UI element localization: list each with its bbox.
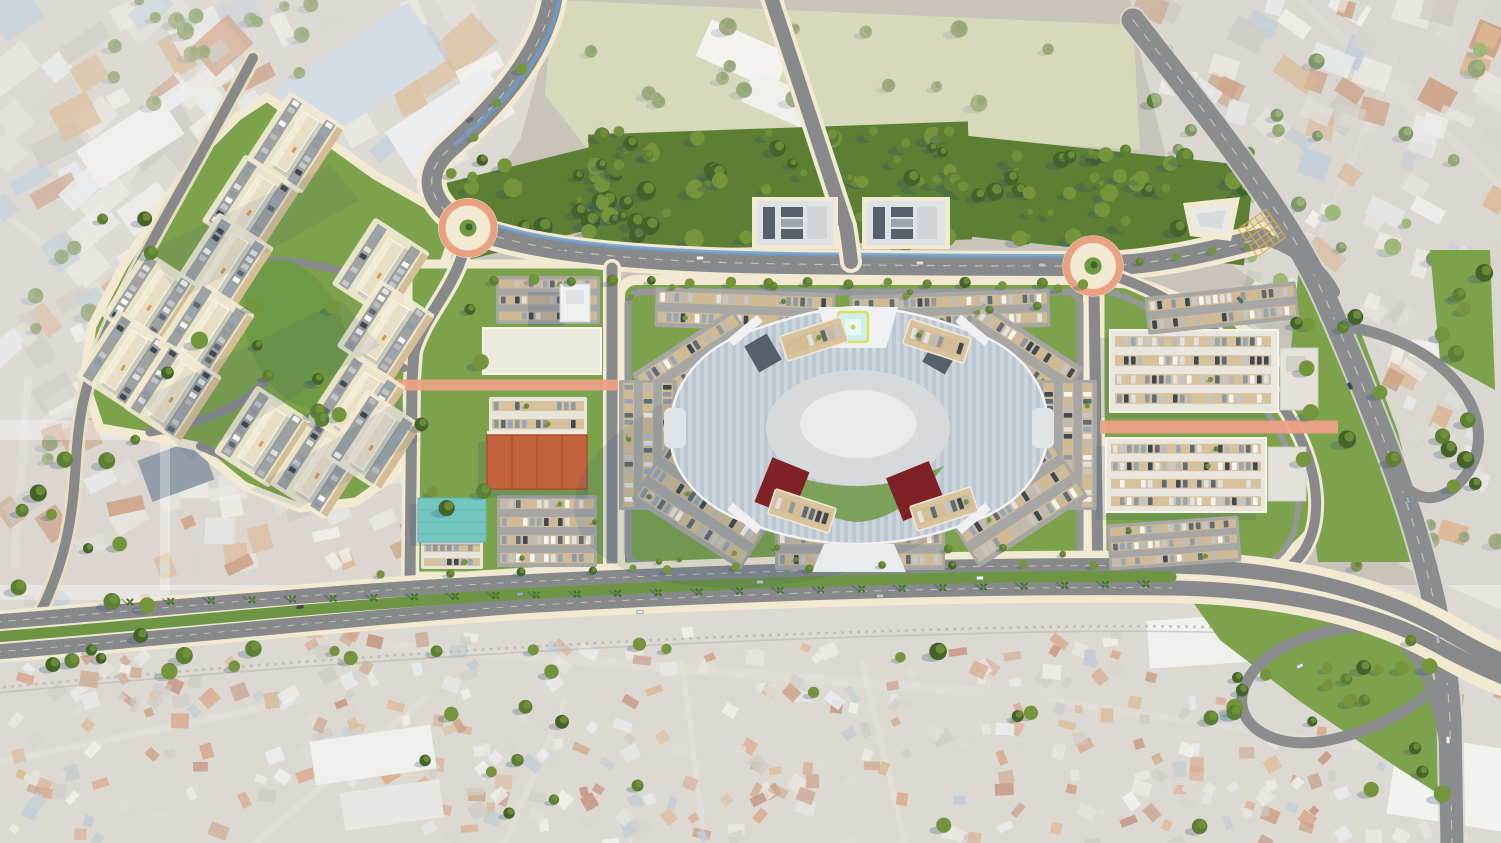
tree-highlight bbox=[905, 294, 909, 298]
parked-car bbox=[1173, 356, 1178, 364]
tree-highlight bbox=[492, 277, 497, 282]
parked-car bbox=[565, 500, 570, 508]
parked-car bbox=[1044, 392, 1053, 397]
tree-highlight bbox=[316, 374, 322, 380]
parked-car bbox=[515, 280, 520, 287]
tree-highlight bbox=[617, 127, 623, 133]
parked-car bbox=[1141, 497, 1146, 505]
tree-highlight bbox=[1121, 216, 1131, 226]
parked-car bbox=[695, 314, 700, 323]
tree-highlight bbox=[1088, 149, 1094, 155]
tree-highlight bbox=[1027, 187, 1034, 194]
palm-crown bbox=[169, 600, 172, 603]
mall-east-glass-roof bbox=[1032, 408, 1054, 448]
parked-car bbox=[1261, 290, 1266, 299]
palm-crown bbox=[941, 586, 944, 589]
tree-highlight bbox=[1057, 285, 1062, 290]
vehicle bbox=[1446, 736, 1450, 743]
palm-crown bbox=[616, 592, 619, 595]
parked-car bbox=[515, 402, 520, 410]
parked-car bbox=[1134, 445, 1139, 453]
parked-car bbox=[571, 402, 576, 410]
parked-car bbox=[1239, 497, 1244, 505]
parked-car bbox=[1155, 462, 1160, 470]
parked-car bbox=[1197, 538, 1202, 545]
parked-car bbox=[716, 295, 721, 304]
parked-car bbox=[1064, 420, 1073, 425]
tree-highlight bbox=[1307, 319, 1314, 326]
tree-highlight bbox=[1103, 148, 1111, 156]
parked-car bbox=[1250, 356, 1255, 364]
tree-highlight bbox=[935, 644, 945, 654]
retail-strip-building bbox=[483, 328, 601, 374]
parked-car bbox=[579, 554, 584, 562]
parked-car bbox=[1170, 555, 1175, 562]
parked-car bbox=[1163, 555, 1168, 562]
tree-highlight bbox=[523, 701, 531, 709]
parked-car bbox=[897, 299, 902, 308]
parked-car bbox=[1001, 295, 1006, 304]
tree-highlight bbox=[806, 278, 811, 283]
tree-highlight bbox=[1446, 442, 1455, 451]
roundabout bbox=[1062, 235, 1123, 296]
tree-highlight bbox=[464, 560, 467, 563]
parked-car bbox=[1275, 288, 1280, 297]
parked-car bbox=[786, 297, 791, 306]
parked-car bbox=[1210, 521, 1215, 528]
office-court bbox=[781, 219, 803, 227]
parked-car bbox=[1239, 462, 1244, 470]
tree-highlight bbox=[647, 218, 657, 228]
tree-highlight bbox=[1099, 180, 1105, 186]
parked-car bbox=[1182, 523, 1187, 530]
parked-car bbox=[515, 296, 520, 303]
palm-crown bbox=[210, 599, 213, 602]
tree-highlight bbox=[735, 563, 740, 568]
parked-car bbox=[1162, 445, 1167, 453]
parked-car bbox=[1197, 480, 1202, 488]
tree-highlight bbox=[1440, 430, 1448, 438]
parked-car bbox=[1036, 294, 1041, 303]
tree-highlight bbox=[1124, 145, 1130, 151]
parked-car bbox=[1113, 445, 1118, 453]
tree-highlight bbox=[252, 299, 260, 307]
tree-highlight bbox=[600, 160, 606, 166]
tree-highlight bbox=[812, 688, 818, 694]
tree-highlight bbox=[744, 232, 751, 239]
tree-highlight bbox=[1106, 186, 1116, 196]
parked-car bbox=[1227, 293, 1232, 302]
parked-car bbox=[579, 536, 584, 544]
parked-car bbox=[1222, 356, 1227, 364]
tree-highlight bbox=[621, 212, 627, 218]
parked-car bbox=[1131, 356, 1136, 364]
parked-car bbox=[1211, 480, 1216, 488]
parked-car bbox=[1134, 462, 1139, 470]
tree-highlight bbox=[632, 565, 636, 569]
tree-highlight bbox=[665, 645, 671, 651]
parked-car bbox=[522, 312, 527, 319]
tree-highlight bbox=[1473, 478, 1480, 485]
parked-car bbox=[906, 555, 911, 564]
office-wing-roof bbox=[873, 207, 885, 239]
parked-car bbox=[1185, 298, 1190, 307]
palm-crown bbox=[697, 590, 700, 593]
stall-row bbox=[492, 401, 584, 411]
tree-highlight bbox=[197, 333, 207, 343]
tree-highlight bbox=[671, 285, 675, 289]
parked-car bbox=[1239, 445, 1244, 453]
parked-car bbox=[536, 420, 541, 428]
tree-highlight bbox=[808, 565, 813, 570]
tree-highlight bbox=[767, 279, 772, 284]
parked-car bbox=[1222, 394, 1227, 402]
parked-car bbox=[1282, 287, 1287, 296]
parked-car bbox=[1159, 375, 1164, 383]
tree-highlight bbox=[1068, 151, 1075, 158]
office-wing-roof bbox=[763, 207, 775, 239]
parked-car bbox=[1183, 497, 1188, 505]
tree-highlight bbox=[577, 197, 583, 203]
tree-highlight bbox=[540, 219, 551, 230]
tree-highlight bbox=[643, 183, 654, 194]
tree-highlight bbox=[1361, 661, 1369, 669]
parked-car bbox=[1083, 434, 1092, 439]
tree-highlight bbox=[109, 594, 118, 603]
palm-crown bbox=[982, 585, 985, 588]
tree-highlight bbox=[791, 159, 797, 165]
parked-car bbox=[1083, 420, 1092, 425]
tree-highlight bbox=[766, 130, 773, 137]
tree-highlight bbox=[481, 485, 489, 493]
tree-highlight bbox=[471, 173, 477, 179]
parked-car bbox=[1064, 392, 1073, 397]
parked-car bbox=[674, 293, 679, 302]
tree-highlight bbox=[20, 505, 27, 512]
tree-highlight bbox=[658, 559, 661, 562]
parked-car bbox=[1083, 462, 1092, 467]
parked-car bbox=[1138, 337, 1143, 345]
parked-car bbox=[1229, 312, 1234, 321]
island-tree bbox=[466, 224, 473, 231]
parked-car bbox=[447, 559, 452, 565]
parked-car bbox=[681, 293, 686, 302]
tree-highlight bbox=[495, 99, 500, 104]
tree-highlight bbox=[1462, 303, 1469, 310]
parked-car bbox=[932, 298, 937, 307]
tree-highlight bbox=[947, 545, 952, 550]
parked-car bbox=[523, 536, 528, 544]
parked-car bbox=[1197, 497, 1202, 505]
parked-car bbox=[1141, 445, 1146, 453]
tree-highlight bbox=[1016, 711, 1023, 718]
parked-car bbox=[1225, 497, 1230, 505]
parked-car bbox=[1183, 462, 1188, 470]
tree-highlight bbox=[1207, 464, 1210, 467]
palm-crown bbox=[860, 587, 863, 590]
parked-car bbox=[551, 500, 556, 508]
tree-highlight bbox=[1071, 230, 1080, 239]
tree-highlight bbox=[1246, 244, 1250, 248]
tree-highlight bbox=[1465, 414, 1474, 423]
parked-car bbox=[1124, 337, 1129, 345]
parked-car bbox=[953, 297, 958, 306]
tower-roof-unit bbox=[566, 290, 584, 304]
tree-highlight bbox=[869, 126, 878, 135]
tree-highlight bbox=[1344, 432, 1354, 442]
parked-car bbox=[1155, 541, 1160, 548]
parked-car bbox=[1284, 306, 1289, 315]
parked-car bbox=[440, 559, 445, 565]
parked-car bbox=[1171, 299, 1176, 308]
parked-car bbox=[537, 500, 542, 508]
parked-car bbox=[1117, 394, 1122, 402]
parked-car bbox=[1257, 394, 1262, 402]
tree-highlight bbox=[182, 648, 191, 657]
tree-highlight bbox=[449, 570, 454, 575]
parked-car bbox=[1145, 337, 1150, 345]
parked-car bbox=[515, 420, 520, 428]
parked-car bbox=[918, 298, 923, 307]
parked-car bbox=[702, 314, 707, 323]
parked-car bbox=[1152, 375, 1157, 383]
tree-highlight bbox=[909, 290, 912, 293]
parked-car bbox=[1121, 558, 1126, 565]
parked-car bbox=[1157, 301, 1162, 310]
tree-highlight bbox=[1232, 706, 1241, 715]
parked-car bbox=[1148, 541, 1153, 548]
office-wing-roof bbox=[807, 207, 827, 239]
parked-car bbox=[1113, 544, 1118, 551]
office-wing-roof bbox=[891, 207, 913, 217]
tree-highlight bbox=[941, 819, 949, 827]
tree-highlight bbox=[117, 538, 125, 546]
parked-car bbox=[1114, 559, 1119, 566]
parked-car bbox=[551, 536, 556, 544]
parked-car bbox=[1029, 294, 1034, 303]
tree-highlight bbox=[167, 664, 176, 673]
parked-car bbox=[544, 536, 549, 544]
parked-car bbox=[1253, 462, 1258, 470]
tree-highlight bbox=[473, 134, 478, 139]
tree-highlight bbox=[893, 156, 901, 164]
tree-highlight bbox=[1301, 453, 1309, 461]
tree-highlight bbox=[1140, 172, 1148, 180]
parked-car bbox=[1173, 375, 1178, 383]
tree-highlight bbox=[765, 185, 771, 191]
parked-car bbox=[644, 385, 653, 390]
tree-highlight bbox=[988, 306, 993, 311]
vehicle bbox=[1117, 586, 1124, 590]
parked-car bbox=[550, 280, 555, 287]
parked-car bbox=[1256, 309, 1261, 318]
parked-car bbox=[564, 402, 569, 410]
parked-car bbox=[821, 298, 826, 307]
tree-highlight bbox=[691, 231, 702, 242]
parked-car bbox=[1152, 394, 1157, 402]
parked-car bbox=[1117, 375, 1122, 383]
parked-car bbox=[1169, 540, 1174, 547]
tree-highlight bbox=[951, 562, 956, 567]
tree-highlight bbox=[379, 571, 384, 576]
parked-car bbox=[468, 559, 473, 565]
parked-car bbox=[1208, 394, 1213, 402]
parked-car bbox=[558, 536, 563, 544]
tree-highlight bbox=[1161, 184, 1170, 193]
tree-highlight bbox=[502, 159, 510, 167]
tree-highlight bbox=[662, 208, 671, 217]
parked-car bbox=[1194, 356, 1199, 364]
tree-highlight bbox=[637, 639, 644, 646]
parked-car bbox=[1277, 307, 1282, 316]
parked-car bbox=[537, 554, 542, 562]
parked-car bbox=[1134, 542, 1139, 549]
tree-highlight bbox=[479, 355, 488, 364]
parked-car bbox=[572, 554, 577, 562]
tree-highlight bbox=[1175, 254, 1179, 258]
parked-car bbox=[1253, 445, 1258, 453]
parked-car bbox=[1180, 337, 1185, 345]
parked-car bbox=[1124, 356, 1129, 364]
parked-car bbox=[522, 296, 527, 303]
parked-car bbox=[1220, 294, 1225, 303]
tree-highlight bbox=[1001, 282, 1006, 287]
tree-highlight bbox=[776, 545, 779, 548]
tree-highlight bbox=[134, 436, 140, 442]
tree-highlight bbox=[490, 767, 496, 773]
parked-car bbox=[1131, 394, 1136, 402]
tree-highlight bbox=[1209, 712, 1217, 720]
palm-crown bbox=[413, 595, 416, 598]
tree-highlight bbox=[560, 716, 568, 724]
mall-courtyard-paving bbox=[800, 390, 916, 458]
parked-car bbox=[730, 295, 735, 304]
parked-car bbox=[1229, 375, 1234, 383]
parked-car bbox=[1196, 522, 1201, 529]
tree-highlight bbox=[734, 551, 737, 554]
palm-crown bbox=[738, 590, 741, 593]
parked-car bbox=[1183, 539, 1188, 546]
parked-car bbox=[1180, 375, 1185, 383]
parked-car bbox=[509, 500, 514, 508]
parked-car bbox=[1147, 526, 1152, 533]
parked-car bbox=[1113, 462, 1118, 470]
tree-highlight bbox=[1118, 170, 1126, 178]
vehicle bbox=[917, 261, 924, 265]
parked-car bbox=[1083, 455, 1092, 460]
parked-car bbox=[1250, 375, 1255, 383]
tree-highlight bbox=[90, 645, 96, 651]
parked-car bbox=[1064, 434, 1073, 439]
vehicle bbox=[296, 605, 303, 609]
office-plot-2 bbox=[862, 197, 950, 249]
tree-highlight bbox=[1068, 188, 1075, 195]
tree-highlight bbox=[142, 213, 150, 221]
parked-car bbox=[1189, 523, 1194, 530]
tree-highlight bbox=[718, 174, 727, 183]
parked-car bbox=[660, 293, 665, 302]
tree-highlight bbox=[1348, 695, 1356, 703]
parked-car bbox=[502, 518, 507, 526]
tree-highlight bbox=[944, 126, 954, 136]
roundabout bbox=[438, 198, 498, 258]
vehicle bbox=[756, 580, 763, 584]
tree-highlight bbox=[251, 642, 260, 651]
tree-highlight bbox=[145, 599, 154, 608]
parked-car bbox=[1176, 497, 1181, 505]
office-plot-1 bbox=[752, 197, 838, 249]
parked-car bbox=[934, 555, 939, 564]
stall-row bbox=[1111, 444, 1261, 454]
tree-highlight bbox=[507, 808, 513, 814]
parked-car bbox=[911, 299, 916, 308]
parked-car bbox=[1215, 337, 1220, 345]
palm-crown bbox=[1144, 582, 1147, 585]
tree-highlight bbox=[1369, 783, 1377, 791]
parked-car bbox=[1229, 394, 1234, 402]
tree-highlight bbox=[423, 756, 429, 762]
parked-car bbox=[1190, 538, 1195, 545]
tree-highlight bbox=[1087, 405, 1090, 408]
parked-car bbox=[1180, 317, 1185, 326]
parked-car bbox=[1131, 375, 1136, 383]
tree-highlight bbox=[520, 568, 525, 573]
parked-car bbox=[1264, 356, 1269, 364]
parked-car bbox=[1083, 427, 1092, 432]
parked-car bbox=[1166, 375, 1171, 383]
tree-highlight bbox=[729, 278, 735, 284]
parked-car bbox=[967, 297, 972, 306]
palm-crown bbox=[372, 596, 375, 599]
parked-car bbox=[1203, 522, 1208, 529]
tree-highlight bbox=[444, 501, 453, 510]
tree-highlight bbox=[547, 422, 550, 425]
vehicle bbox=[1436, 636, 1441, 643]
parked-car bbox=[913, 555, 918, 564]
tree-highlight bbox=[1440, 328, 1448, 336]
tree-highlight bbox=[1197, 820, 1206, 829]
tree-highlight bbox=[50, 510, 56, 516]
parked-car bbox=[1145, 394, 1150, 402]
parked-car bbox=[1222, 375, 1227, 383]
tree-highlight bbox=[614, 160, 624, 170]
parked-car bbox=[644, 399, 653, 404]
tree-highlight bbox=[775, 141, 784, 150]
parked-car bbox=[1201, 375, 1206, 383]
parked-car bbox=[1213, 295, 1218, 304]
parked-car bbox=[530, 554, 535, 562]
tree-highlight bbox=[1138, 258, 1142, 262]
parked-car bbox=[558, 518, 563, 526]
parked-car bbox=[1008, 295, 1013, 304]
tree-highlight bbox=[1236, 673, 1242, 679]
parked-car bbox=[1180, 356, 1185, 364]
tree-highlight bbox=[431, 488, 437, 494]
parked-car bbox=[1131, 337, 1136, 345]
parked-car bbox=[1083, 392, 1092, 397]
parked-car bbox=[1218, 480, 1223, 488]
tree-highlight bbox=[1413, 743, 1420, 750]
tree-highlight bbox=[926, 280, 931, 285]
vehicle bbox=[876, 594, 883, 598]
parked-car bbox=[890, 299, 895, 308]
tree-highlight bbox=[419, 419, 427, 427]
parked-car bbox=[1168, 524, 1173, 531]
parked-car bbox=[1270, 308, 1275, 317]
tree-highlight bbox=[679, 558, 682, 561]
parked-car bbox=[494, 402, 499, 410]
parked-car bbox=[1246, 497, 1251, 505]
